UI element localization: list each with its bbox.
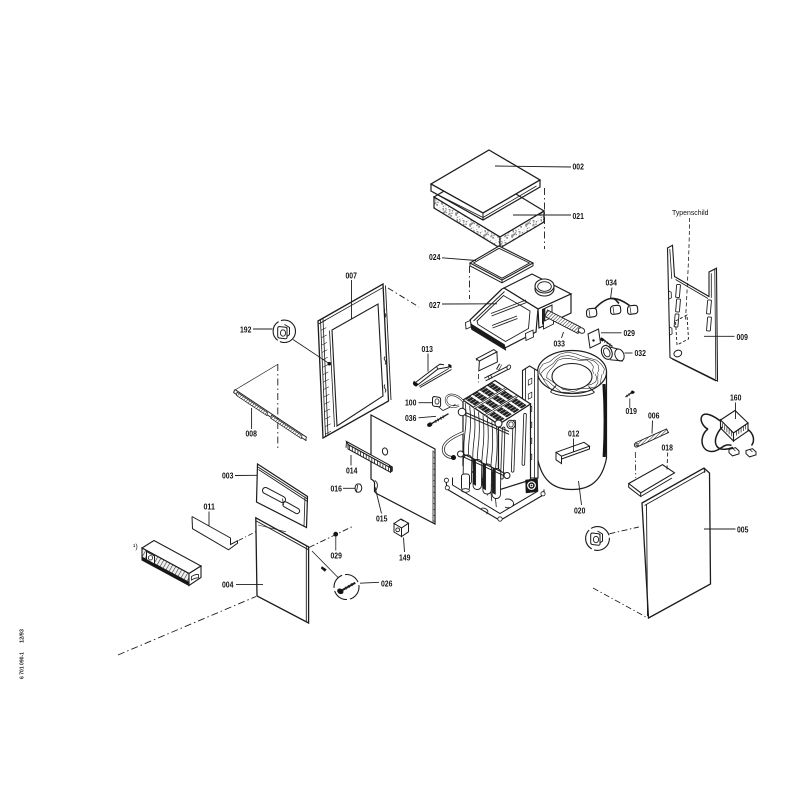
svg-text:¹): ¹) (133, 544, 138, 551)
svg-text:020: 020 (574, 507, 586, 516)
svg-text:021: 021 (573, 212, 585, 221)
svg-text:019: 019 (626, 407, 638, 416)
svg-text:024: 024 (429, 253, 441, 262)
svg-text:12/93: 12/93 (20, 629, 26, 643)
svg-text:100: 100 (405, 399, 417, 408)
svg-text:005: 005 (737, 526, 749, 535)
svg-text:018: 018 (662, 444, 674, 453)
svg-text:011: 011 (204, 503, 216, 512)
svg-text:015: 015 (376, 515, 388, 524)
svg-text:006: 006 (648, 412, 660, 421)
svg-text:013: 013 (422, 345, 434, 354)
svg-text:192: 192 (240, 326, 252, 335)
svg-text:007: 007 (346, 272, 358, 281)
svg-text:012: 012 (568, 430, 580, 439)
svg-text:009: 009 (737, 333, 749, 342)
svg-text:029: 029 (331, 552, 343, 561)
svg-text:003: 003 (222, 472, 234, 481)
svg-text:027: 027 (429, 301, 441, 310)
svg-text:Typenschild: Typenschild (672, 208, 709, 217)
svg-text:002: 002 (573, 163, 585, 172)
svg-text:014: 014 (346, 467, 358, 476)
svg-text:160: 160 (730, 394, 742, 403)
svg-text:036: 036 (405, 414, 417, 423)
svg-text:004: 004 (222, 581, 234, 590)
svg-text:149: 149 (399, 554, 411, 563)
svg-text:032: 032 (635, 349, 647, 358)
svg-text:026: 026 (381, 580, 393, 589)
svg-text:029: 029 (624, 329, 636, 338)
svg-text:034: 034 (606, 279, 618, 288)
svg-text:016: 016 (331, 485, 343, 494)
svg-text:6 701 090-1: 6 701 090-1 (20, 652, 26, 679)
svg-text:033: 033 (554, 340, 566, 349)
svg-text:008: 008 (246, 430, 258, 439)
